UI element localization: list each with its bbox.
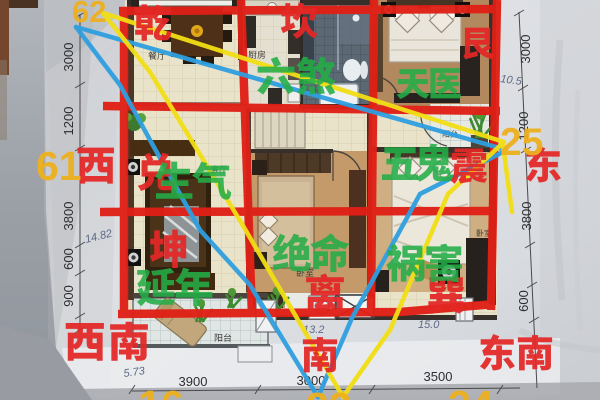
svg-text:600: 600 [516, 290, 531, 312]
svg-text:24: 24 [448, 382, 494, 400]
svg-text:16: 16 [138, 382, 184, 400]
svg-text:3800: 3800 [519, 202, 534, 231]
svg-text:25: 25 [500, 121, 543, 164]
svg-text:61: 61 [36, 143, 82, 189]
svg-text:3000: 3000 [518, 35, 533, 64]
svg-text:1200: 1200 [61, 107, 76, 136]
svg-text:32: 32 [306, 384, 352, 400]
svg-text:600: 600 [61, 248, 76, 270]
svg-text:900: 900 [61, 285, 76, 307]
svg-text:3000: 3000 [61, 43, 76, 72]
svg-text:15.0: 15.0 [418, 319, 440, 331]
svg-text:3800: 3800 [61, 202, 76, 231]
svg-text:62: 62 [72, 0, 106, 29]
